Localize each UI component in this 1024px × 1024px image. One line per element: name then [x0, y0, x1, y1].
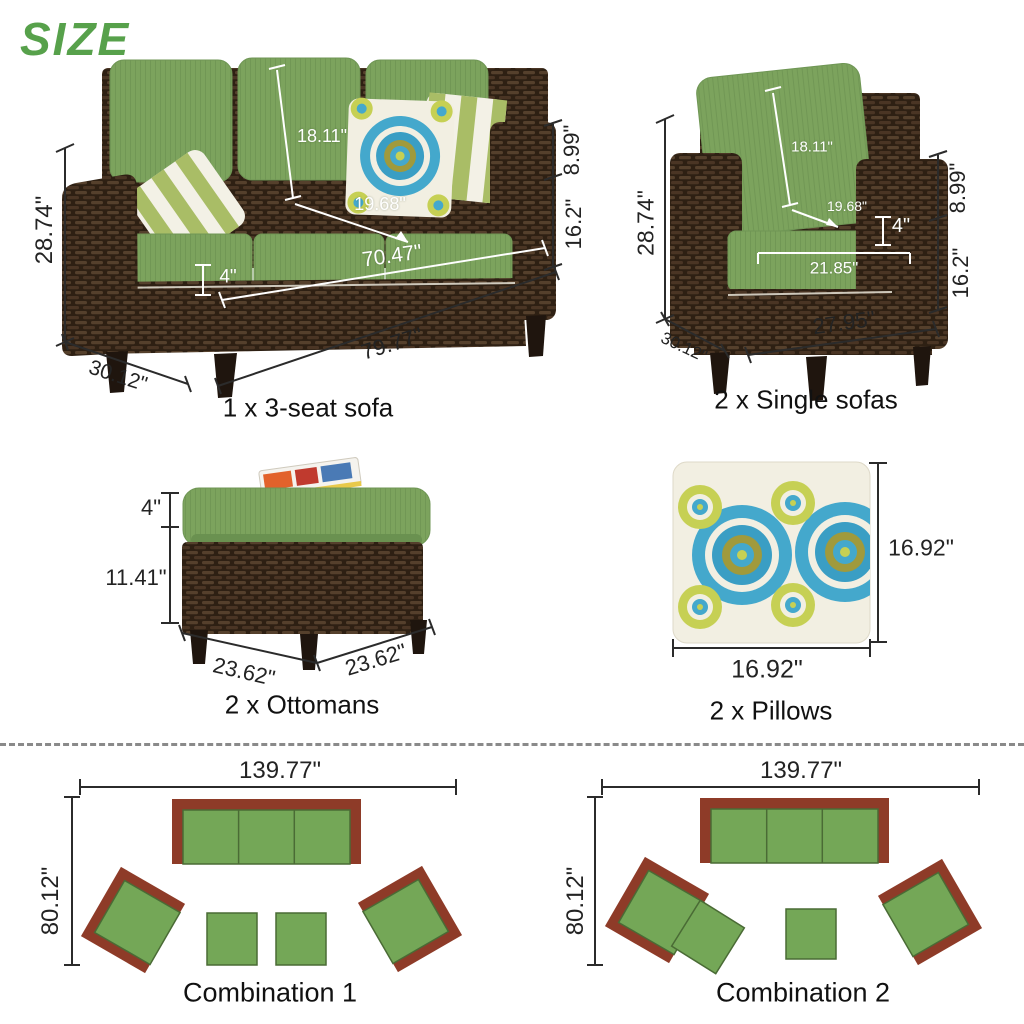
dim-combo2-overall-depth: 80.12"	[564, 867, 588, 936]
caption-combination-2: Combination 2	[716, 978, 890, 1009]
sofa-body	[62, 58, 556, 398]
dim-single-cushion-thickness: 4"	[892, 216, 910, 236]
dim-single-overall-height: 28.74"	[635, 190, 658, 256]
dim-combo1-overall-depth: 80.12"	[39, 867, 63, 936]
dim-pillow-height: 16.92"	[888, 537, 954, 560]
caption-3-seat-sofa: 1 x 3-seat sofa	[223, 393, 394, 424]
combo1-right-chair-top-view	[358, 866, 462, 972]
dim-combo1-overall-width: 139.77"	[239, 759, 321, 783]
caption-combination-1: Combination 1	[183, 978, 357, 1009]
section-combination-2: 139.77" 80.12" Combination 2	[512, 752, 1024, 1014]
dashed-divider	[0, 743, 1024, 746]
combo1-sofa-top-view	[172, 799, 361, 864]
ottoman-base	[182, 542, 423, 634]
size-infographic: SIZE	[0, 0, 1024, 1024]
combo1-left-chair-top-view	[81, 867, 185, 973]
sofa-base	[98, 278, 526, 354]
combination-1-plan	[0, 752, 512, 1014]
dim-sofa3-seat-height: 16.2"	[563, 199, 585, 250]
caption-pillows: 2 x Pillows	[710, 696, 833, 727]
combo1-ottoman-2-top-view	[276, 913, 326, 965]
dim-sofa3-back-cushion-height: 18.11"	[297, 127, 347, 145]
caption-single-sofas: 2 x Single sofas	[714, 385, 898, 416]
combo1-ottoman-1-top-view	[207, 913, 257, 965]
dim-sofa3-arm-above-seat: 8.99"	[561, 125, 583, 176]
combo2-right-chair-top-view	[878, 859, 982, 965]
dim-combo2-overall-width: 139.77"	[760, 759, 842, 783]
ottoman-illustration	[105, 450, 475, 730]
dim-sofa3-cushion-thickness: 4"	[219, 268, 236, 287]
combo2-ottoman-top-view	[786, 909, 836, 959]
dim-single-seat-depth: 19.68"	[827, 199, 867, 213]
section-single-sofa: 28.74" 18.11" 19.68" 4" 21.85" 8.99" 16.…	[630, 55, 1024, 430]
dim-sofa3-overall-height: 28.74"	[33, 196, 57, 265]
pillow-body	[673, 462, 895, 643]
dim-single-arm-above-seat: 8.99"	[947, 163, 969, 214]
dim-ottoman-base-height: 11.41"	[105, 567, 166, 589]
dim-ottoman-cushion-thickness: 4"	[141, 497, 161, 519]
caption-ottomans: 2 x Ottomans	[225, 690, 380, 721]
combo2-sofa-top-view	[700, 798, 889, 863]
section-pillows: 16.92" 16.92" 2 x Pillows	[645, 445, 1024, 730]
pillow-illustration	[645, 445, 1024, 730]
section-3-seat-sofa: 28.74" 18.11" 19.68" 4" 70.47" 8.99" 16.…	[10, 40, 620, 435]
section-ottomans: 4" 11.41" 23.62" 23.62" 2 x Ottomans	[105, 450, 475, 730]
sofa-left-arm	[62, 174, 138, 356]
section-combination-1: 139.77" 80.12" Combination 1	[0, 752, 512, 1014]
dim-single-inner-width: 21.85"	[810, 260, 859, 277]
dim-single-seat-height: 16.2"	[950, 248, 972, 299]
dim-pillow-width: 16.92"	[731, 658, 802, 683]
dim-single-back-cushion-height: 18.11"	[791, 140, 833, 155]
single-sofa-illustration	[630, 55, 1024, 430]
dim-sofa3-seat-depth: 19.68"	[354, 195, 405, 213]
